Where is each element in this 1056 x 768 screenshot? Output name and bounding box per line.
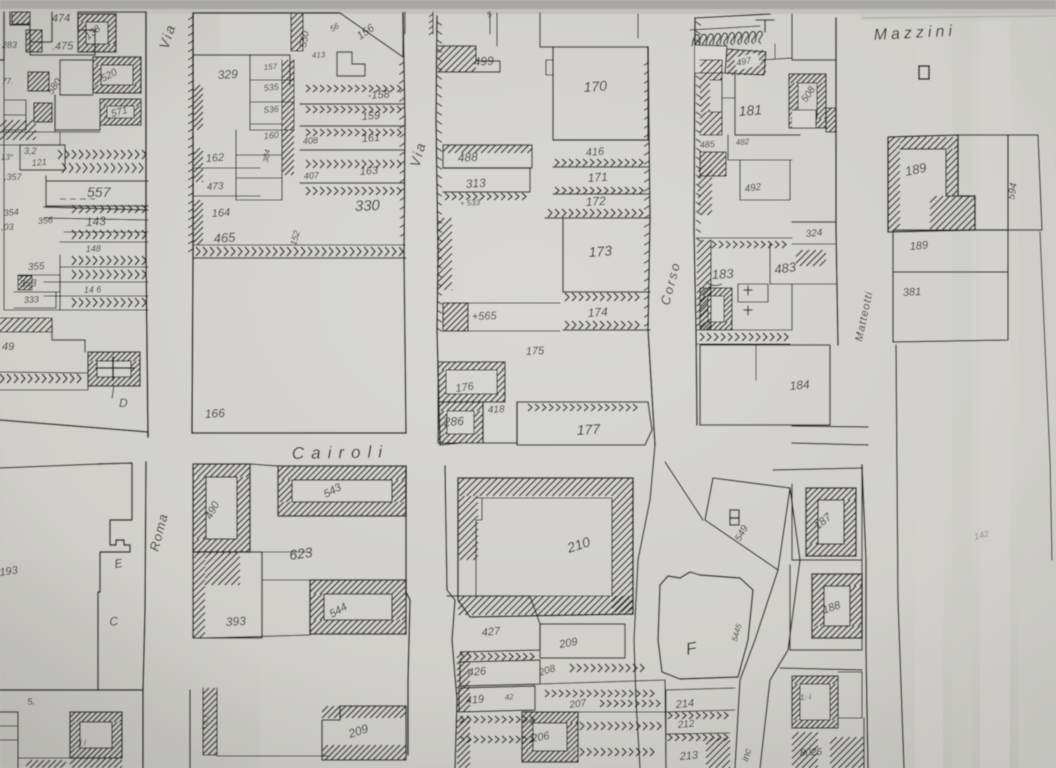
svg-text:+ 533: + 533	[460, 198, 481, 208]
svg-text:181: 181	[738, 101, 762, 119]
svg-text:161: 161	[361, 132, 380, 145]
svg-text:3,2: 3,2	[24, 146, 37, 156]
svg-text:49: 49	[2, 341, 14, 353]
svg-text:393: 393	[225, 614, 246, 629]
svg-text:354: 354	[3, 207, 19, 218]
svg-text:148: 148	[86, 243, 102, 254]
svg-text:536: 536	[263, 104, 279, 115]
svg-text:+565: +565	[472, 310, 498, 323]
svg-text:143: 143	[85, 214, 106, 229]
svg-text:482: 482	[736, 137, 750, 147]
svg-text:473: 473	[206, 181, 224, 193]
svg-text:174: 174	[587, 305, 608, 320]
svg-text:,03: ,03	[1, 222, 14, 232]
svg-text:474: 474	[52, 12, 71, 25]
svg-text:313: 313	[465, 176, 486, 191]
svg-text:212: 212	[676, 719, 695, 732]
svg-text:160: 160	[263, 130, 279, 141]
svg-text:42: 42	[504, 692, 514, 702]
svg-text:175: 175	[526, 345, 546, 358]
svg-text:535: 535	[263, 82, 280, 93]
svg-text:163: 163	[359, 165, 379, 178]
svg-text:426: 426	[467, 665, 487, 679]
svg-text:173: 173	[588, 242, 613, 260]
svg-text:Cairoli: Cairoli	[292, 442, 390, 463]
svg-text:381: 381	[903, 286, 922, 299]
svg-text:213: 213	[678, 749, 699, 763]
svg-text:184: 184	[789, 377, 810, 393]
svg-text:330: 330	[355, 197, 381, 215]
svg-text:171: 171	[587, 170, 608, 185]
svg-text:483: 483	[773, 259, 797, 277]
svg-text:499: 499	[473, 54, 494, 69]
svg-text:413: 413	[312, 50, 326, 60]
svg-text:162: 162	[205, 152, 224, 165]
svg-text:183: 183	[711, 266, 734, 282]
svg-text:D: D	[119, 396, 128, 410]
svg-text:283: 283	[1, 40, 17, 50]
svg-text:418: 418	[488, 404, 506, 416]
svg-text:214: 214	[674, 697, 694, 711]
svg-text:427: 427	[481, 625, 501, 639]
svg-text:,357: ,357	[4, 172, 23, 182]
svg-text:.475: .475	[52, 40, 75, 53]
svg-text:355: 355	[28, 261, 46, 273]
svg-text:408: 408	[303, 135, 319, 146]
svg-text:324: 324	[805, 228, 823, 240]
svg-text:177: 177	[576, 421, 601, 438]
svg-text:416: 416	[585, 146, 605, 159]
svg-text:419: 419	[465, 693, 484, 707]
svg-text:488: 488	[457, 150, 478, 165]
svg-text:166: 166	[204, 406, 225, 421]
svg-text:1:·i: 1:·i	[800, 692, 812, 702]
svg-text:121: 121	[31, 157, 47, 168]
svg-text:407: 407	[304, 170, 321, 181]
svg-text:329: 329	[217, 67, 238, 82]
svg-text:i i: i i	[80, 738, 86, 747]
svg-text:170: 170	[583, 77, 608, 95]
svg-text:164: 164	[211, 207, 230, 220]
svg-text:356: 356	[37, 215, 53, 226]
svg-text:13°: 13°	[1, 153, 14, 162]
svg-text:465: 465	[213, 229, 236, 246]
svg-text:172: 172	[585, 194, 606, 209]
svg-text:286: 286	[442, 414, 464, 429]
svg-text:333: 333	[24, 294, 40, 305]
svg-text:557: 557	[87, 184, 112, 200]
svg-text:-158: -158	[367, 88, 391, 102]
svg-text:157: 157	[263, 62, 278, 72]
svg-text:14 6: 14 6	[84, 284, 102, 295]
svg-text:623: 623	[288, 544, 314, 563]
svg-text:189: 189	[909, 239, 928, 253]
svg-text:485: 485	[699, 139, 716, 150]
svg-text:159: 159	[361, 110, 380, 123]
